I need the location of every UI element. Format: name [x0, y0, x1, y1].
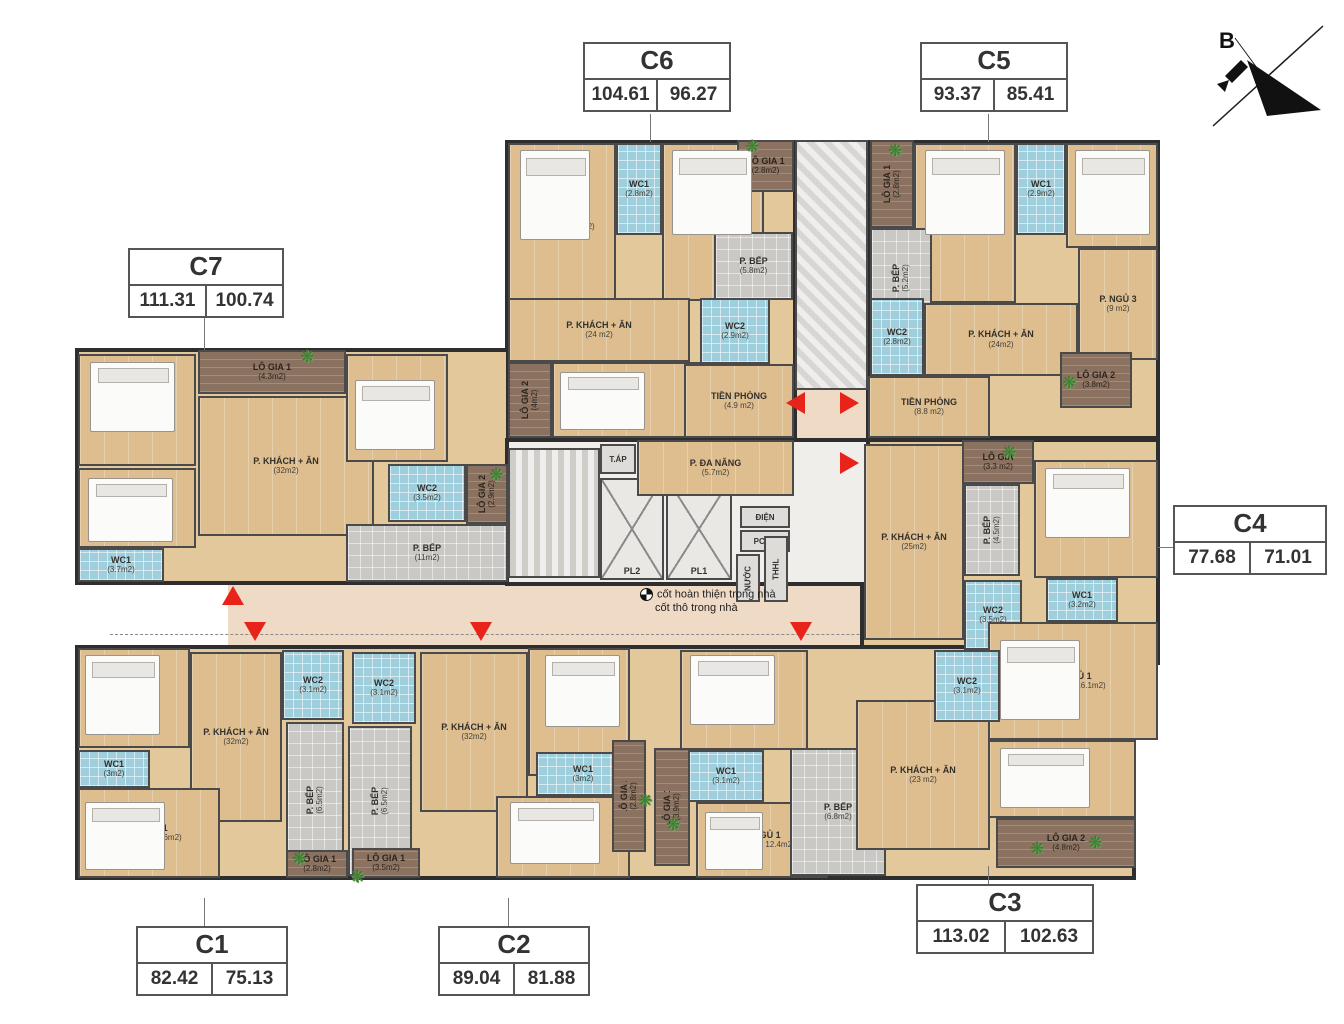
- plant-icon: ❋: [745, 138, 759, 155]
- room-C6-tienphong: TIỀN PHÒNG(4.9 m2): [684, 364, 794, 438]
- room-name: P. BẾP: [892, 264, 901, 292]
- leader-C4: [1158, 547, 1174, 548]
- room-area: (32m2): [461, 733, 486, 741]
- core-tap-label: T.ÁP: [609, 455, 626, 464]
- unit-label-C7: C7 111.31100.74: [128, 248, 284, 318]
- room-name: WC2: [725, 322, 745, 331]
- bed-furniture: [672, 150, 752, 235]
- unit-gross-area: 82.42: [138, 964, 213, 994]
- room-area: (23 m2): [909, 776, 937, 784]
- unit-label-C5: C5 93.3785.41: [920, 42, 1068, 112]
- plant-icon: ❋: [1088, 834, 1102, 851]
- room-name: WC1: [104, 760, 124, 769]
- room-name: P. KHÁCH + ĂN: [253, 457, 319, 466]
- compass-label: B: [1219, 28, 1235, 53]
- room-name: P. KHÁCH + ĂN: [203, 728, 269, 737]
- room-name: WC1: [1031, 180, 1051, 189]
- room-area: (24m2): [988, 341, 1013, 349]
- room-area: (11m2): [415, 554, 440, 562]
- unit-gross-area: 93.37: [922, 80, 995, 110]
- room-name: LÔ GIA 2: [478, 475, 487, 513]
- unit-net-area: 96.27: [658, 80, 729, 110]
- room-C1-wc1: WC1(3m2): [78, 750, 150, 788]
- bed-furniture: [1000, 748, 1090, 808]
- plant-icon: ❋: [292, 850, 306, 867]
- room-C3-logia2: LÔ GIA 2(4.8m2): [996, 818, 1136, 868]
- stairs: [508, 448, 600, 578]
- bed-furniture: [1075, 150, 1150, 235]
- bed-furniture: [545, 655, 620, 727]
- room-area: (8.8 m2): [914, 408, 944, 416]
- room-area: (25m2): [901, 543, 926, 551]
- shaft-dien-label: ĐIỆN: [755, 513, 774, 522]
- unit-id: C7: [130, 250, 282, 286]
- room-C6-khach: P. KHÁCH + ĂN(24 m2): [508, 298, 690, 362]
- room-C5-khach: P. KHÁCH + ĂN(24m2): [924, 303, 1078, 376]
- unit-label-C1: C1 82.4275.13: [136, 926, 288, 996]
- unit-gross-area: 111.31: [130, 286, 207, 316]
- room-area: (3.3 m2): [983, 463, 1013, 471]
- leader-C1: [204, 898, 205, 928]
- room-C4-khach: P. KHÁCH + ĂN(25m2): [864, 444, 964, 640]
- room-C6-wc1: WC1(2.8m2): [616, 143, 662, 235]
- room-C7-bep: P. BẾP(11m2): [346, 524, 508, 582]
- bed-furniture: [925, 150, 1005, 235]
- room-area: (6.8m2): [824, 813, 852, 821]
- unit-net-area: 85.41: [995, 80, 1066, 110]
- room-area: (32m2): [223, 738, 248, 746]
- floor-plan: T.ÁP PL2 PL1 ĐIỆN PCCC NƯỚC THHL cốt hoà…: [0, 0, 1344, 1024]
- entrance-arrow-right: [840, 452, 859, 474]
- leader-C6: [650, 114, 651, 142]
- room-name: WC1: [716, 767, 736, 776]
- unit-label-C3: C3 113.02102.63: [916, 884, 1094, 954]
- bed-furniture: [1000, 640, 1080, 720]
- room-area: (3m2): [104, 770, 125, 778]
- plant-icon: ❋: [350, 868, 364, 885]
- room-area: (2.8m2): [303, 865, 331, 873]
- room-area: (5.7m2): [702, 469, 730, 477]
- core-tap: T.ÁP: [600, 444, 636, 474]
- room-name: WC2: [957, 677, 977, 686]
- room-name: WC2: [417, 484, 437, 493]
- room-area: (4.5m2): [993, 516, 1001, 544]
- leader-C7: [204, 318, 205, 350]
- room-name: WC1: [573, 765, 593, 774]
- room-area: (6.5m2): [316, 786, 324, 814]
- room-area: (24 m2): [585, 331, 613, 339]
- plant-icon: ❋: [1002, 444, 1016, 461]
- unit-id: C5: [922, 44, 1066, 80]
- room-area: (3.8m2): [1082, 381, 1110, 389]
- unit-net-area: 100.74: [207, 286, 282, 316]
- bed-furniture: [520, 150, 590, 240]
- plant-icon: ❋: [489, 466, 503, 483]
- room-area: (2.9m2): [1027, 190, 1055, 198]
- elevator-pl2-label: PL2: [602, 566, 662, 576]
- room-name: LÔ GIA 1: [746, 157, 784, 166]
- room-C4-logia: LÔ GIA(3.3 m2): [962, 440, 1034, 484]
- room-C7-logia1: LÔ GIA 1(4.3m2): [198, 350, 346, 394]
- room-area: (3.5m2): [413, 494, 441, 502]
- level-note: cốt hoàn thiện trong nhà cốt thô trong n…: [640, 588, 776, 616]
- room-name: LÔ GIA 2: [1047, 834, 1085, 843]
- leader-C5: [988, 114, 989, 142]
- room-C5-ngu3: P. NGỦ 3(9 m2): [1078, 248, 1158, 360]
- bed-furniture: [560, 372, 645, 430]
- room-C1-wc2: WC2(3.1m2): [282, 650, 344, 720]
- leader-C2: [508, 898, 509, 928]
- room-C6-bep: P. BẾP(5.8m2): [714, 232, 793, 300]
- room-area: (9 m2): [1106, 305, 1129, 313]
- room-area: (3.1m2): [299, 686, 327, 694]
- room-area: (2.8m2): [752, 167, 780, 175]
- room-C5-wc2: WC2(2.8m2): [870, 298, 924, 376]
- unit-id: C1: [138, 928, 286, 964]
- unit-net-area: 102.63: [1006, 922, 1092, 952]
- unit-id: C2: [440, 928, 588, 964]
- unit-label-C4: C4 77.6871.01: [1173, 505, 1327, 575]
- room-name: WC2: [887, 328, 907, 337]
- room-area: (3.1m2): [712, 777, 740, 785]
- room-C4-bep: P. BẾP(4.5m2): [964, 484, 1020, 576]
- room-name: LÔ GIA 1: [367, 854, 405, 863]
- room-C3-khach: P. KHÁCH + ĂN(23 m2): [856, 700, 990, 850]
- room-area: (3.1m2): [953, 687, 981, 695]
- leader-C3: [988, 866, 989, 886]
- unit-net-area: 71.01: [1251, 543, 1325, 573]
- room-name: LÔ GIA 1: [253, 363, 291, 372]
- bed-furniture: [355, 380, 435, 450]
- room-area: (3.5m2): [372, 864, 400, 872]
- room-name: WC2: [983, 606, 1003, 615]
- entrance-arrow-down: [470, 622, 492, 641]
- room-name: WC1: [629, 180, 649, 189]
- room-area: (2.8m2): [883, 338, 911, 346]
- level-marker-icon: [640, 588, 653, 601]
- room-C5-tienphong: TIỀN PHÒNG(8.8 m2): [868, 376, 990, 438]
- room-area: (3.1m2): [370, 689, 398, 697]
- unit-gross-area: 113.02: [918, 922, 1006, 952]
- entrance-arrow-left: [786, 392, 805, 414]
- room-name: P. KHÁCH + ĂN: [566, 321, 632, 330]
- entrance-arrow-down: [790, 622, 812, 641]
- room-area: (2.9m2): [488, 480, 496, 508]
- room-C2-wc2: WC2(3.1m2): [352, 652, 416, 724]
- compass-icon: B: [1195, 18, 1335, 138]
- room-name: P. BẾP: [983, 516, 992, 544]
- unit-id: C4: [1175, 507, 1325, 543]
- bed-furniture: [1045, 468, 1130, 538]
- level-note-line2: cốt thô trong nhà: [655, 602, 738, 614]
- room-name: P. KHÁCH + ĂN: [890, 766, 956, 775]
- bed-furniture: [510, 802, 600, 864]
- plant-icon: ❋: [888, 142, 902, 159]
- bed-furniture: [88, 478, 173, 542]
- room-name: LÔ GIA 2: [1077, 371, 1115, 380]
- unit-net-area: 81.88: [515, 964, 588, 994]
- room-name: P. BẾP: [413, 544, 441, 553]
- unit-net-area: 75.13: [213, 964, 286, 994]
- room-C4-wc1: WC1(3.2m2): [1046, 578, 1118, 622]
- elevator-pl1-label: PL1: [668, 566, 730, 576]
- room-name: WC2: [303, 676, 323, 685]
- room-area: (3.7m2): [107, 566, 135, 574]
- room-area: (4.3m2): [258, 373, 286, 381]
- plant-icon: ❋: [300, 348, 314, 365]
- room-C6-danang: P. ĐA NĂNG(5.7m2): [637, 440, 794, 496]
- room-C5-wc1: WC1(2.9m2): [1016, 143, 1066, 235]
- room-name: P. BẾP: [739, 257, 767, 266]
- room-name: P. BẾP: [824, 803, 852, 812]
- room-area: (4m2): [531, 390, 539, 411]
- room-area: (4.9 m2): [724, 402, 754, 410]
- entrance-arrow-right: [840, 392, 859, 414]
- unit-id: C3: [918, 886, 1092, 922]
- plant-icon: ❋: [638, 792, 652, 809]
- room-C6-logia2: LÔ GIA 2(4m2): [508, 362, 552, 438]
- room-name: LÔ GIA 1: [883, 165, 892, 203]
- room-area: (2.9m2): [721, 332, 749, 340]
- entrance-arrow-down: [244, 622, 266, 641]
- room-C7-wc2: WC2(3.5m2): [388, 464, 466, 522]
- room-area: (5.2m2): [902, 264, 910, 292]
- room-area: (32m2): [273, 467, 298, 475]
- room-area: (2.8m2): [625, 190, 653, 198]
- compass: B: [1195, 18, 1335, 138]
- room-name: WC1: [1072, 591, 1092, 600]
- bed-furniture: [85, 802, 165, 870]
- room-area: (3.2m2): [1068, 601, 1096, 609]
- unit-label-C6: C6 104.6196.27: [583, 42, 731, 112]
- room-name: LÔ GIA 2: [521, 381, 530, 419]
- bed-furniture: [90, 362, 175, 432]
- room-C6-wc2: WC2(2.9m2): [700, 298, 770, 364]
- unit-label-C2: C2 89.0481.88: [438, 926, 590, 996]
- entrance-arrow-up: [222, 586, 244, 605]
- room-name: P. KHÁCH + ĂN: [441, 723, 507, 732]
- room-C7-wc1: WC1(3.7m2): [78, 548, 164, 582]
- bed-furniture: [690, 655, 775, 725]
- room-name: WC1: [111, 556, 131, 565]
- plant-icon: ❋: [1062, 374, 1076, 391]
- bed-furniture: [705, 812, 763, 870]
- unit-gross-area: 89.04: [440, 964, 515, 994]
- unit-gross-area: 77.68: [1175, 543, 1251, 573]
- room-area: (4.8m2): [1052, 844, 1080, 852]
- room-name: WC2: [374, 679, 394, 688]
- room-area: (5.8m2): [740, 267, 768, 275]
- room-name: P. KHÁCH + ĂN: [968, 330, 1034, 339]
- room-name: P. BẾP: [306, 786, 315, 814]
- room-area: (2.8m2): [893, 170, 901, 198]
- room-C3-wc2: WC2(3.1m2): [934, 650, 1000, 722]
- room-name: TIỀN PHÒNG: [711, 392, 767, 401]
- room-name: P. NGỦ 3: [1099, 295, 1136, 304]
- room-name: LÔ GIA 2: [620, 781, 629, 811]
- unit-gross-area: 104.61: [585, 80, 658, 110]
- unit-id: C6: [585, 44, 729, 80]
- room-name: P. ĐA NĂNG: [690, 459, 742, 468]
- plant-icon: ❋: [1030, 840, 1044, 857]
- level-note-line1: cốt hoàn thiện trong nhà: [657, 588, 776, 600]
- room-name: P. KHÁCH + ĂN: [881, 533, 947, 542]
- room-name: TIỀN PHÒNG: [901, 398, 957, 407]
- shaft-dien: ĐIỆN: [740, 506, 790, 528]
- bed-furniture: [85, 655, 160, 735]
- plant-icon: ❋: [666, 816, 680, 833]
